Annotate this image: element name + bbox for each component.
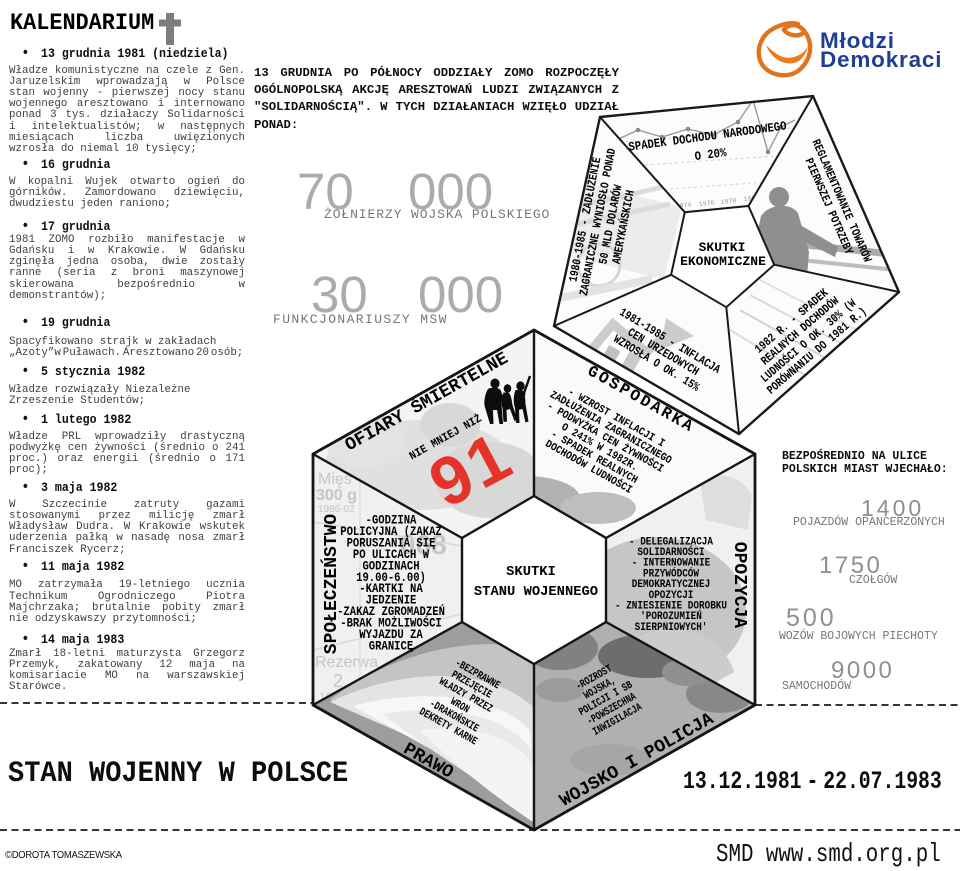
svg-text:Rezerwa: Rezerwa xyxy=(315,654,378,671)
svg-text:SPOŁECZEŃSTWO: SPOŁECZEŃSTWO xyxy=(320,514,342,655)
svg-text:PRZYWÓDCÓW: PRZYWÓDCÓW xyxy=(643,566,700,581)
svg-text:GRANICĘ: GRANICĘ xyxy=(369,640,413,654)
svg-text:OPOZYCJA: OPOZYCJA xyxy=(729,542,749,629)
svg-text:SIERPNIOWYCH': SIERPNIOWYCH' xyxy=(635,621,708,634)
svg-text:300 g: 300 g xyxy=(316,487,357,504)
svg-text:'POROZUMIEŃ: 'POROZUMIEŃ xyxy=(640,608,702,623)
svg-text:SKUTKI: SKUTKI xyxy=(506,565,556,580)
svg-text:1986-02: 1986-02 xyxy=(318,504,355,515)
svg-text:STANU WOJENNEGO: STANU WOJENNEGO xyxy=(474,585,598,600)
svg-text:EKONOMICZNE: EKONOMICZNE xyxy=(680,254,766,269)
svg-text:SKUTKI: SKUTKI xyxy=(699,240,746,255)
svg-text:SOLIDARNOŚCI: SOLIDARNOŚCI xyxy=(637,544,704,559)
